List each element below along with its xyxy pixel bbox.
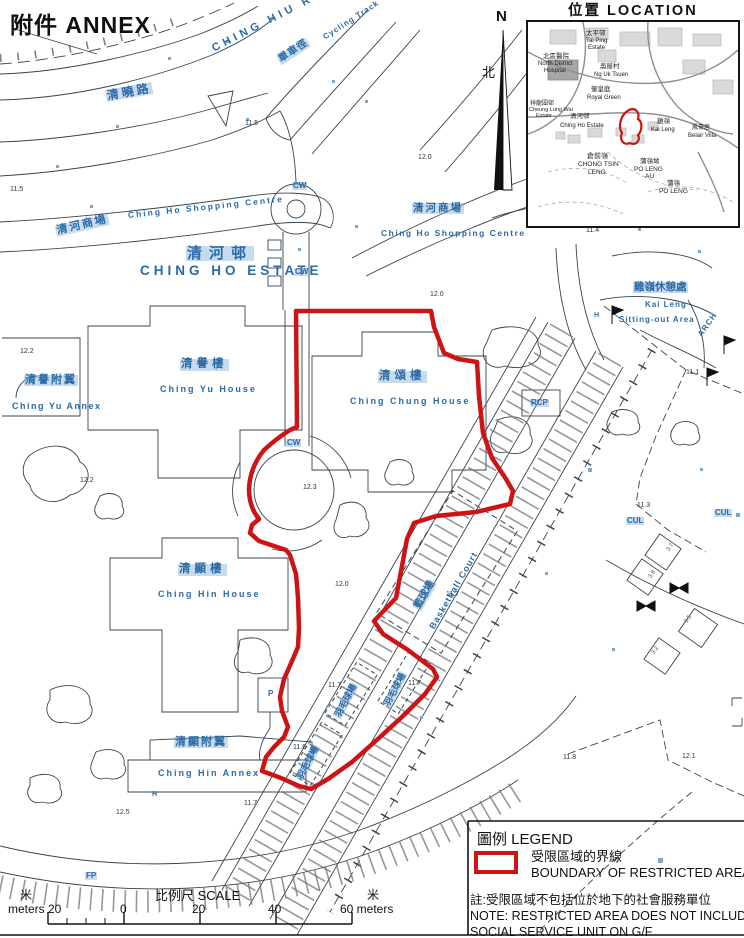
label-cw-1: CW — [292, 182, 307, 190]
annex-map-page: CHING HIU ROAD清曉路單車徑Cycling Track清河商場Chi… — [0, 0, 744, 938]
inset-title: 位置 LOCATION — [568, 3, 698, 20]
label-ching-hin-house-zh: 清顯樓 — [178, 564, 227, 576]
spot-height: 11.7 — [328, 682, 341, 689]
legend-note-en2: SOCIAL SERVICE UNIT ON G/F — [470, 925, 652, 938]
spot-height: 12.1 — [682, 753, 696, 760]
label-p: P — [268, 690, 273, 698]
label-shopping-centre-east-en: Ching Ho Shopping Centre — [381, 229, 526, 238]
survey-flag-icons — [612, 306, 735, 611]
north-label: N — [496, 8, 507, 25]
label-ching-chung-house-en: Ching Chung House — [350, 397, 471, 406]
inset-north-district-hospital-en: North District — [538, 61, 573, 67]
label-ching-ho-estate-zh: 清河邨 — [186, 246, 254, 261]
label-h-1: H — [594, 312, 599, 319]
spot-height: 12.0 — [430, 291, 444, 298]
inset-po-leng-en: PO LENG — [659, 189, 688, 196]
spot-height: 11.7 — [244, 800, 257, 807]
inset-po-leng-zh: 蒲嶺 — [667, 181, 680, 188]
label-fp: FP — [85, 872, 97, 880]
spot-height: 11.3 — [637, 502, 650, 509]
legend-title: 圖例 LEGEND — [477, 831, 573, 848]
scale-zero: 0 — [120, 903, 127, 917]
spot-height: 11.6 — [293, 744, 306, 751]
label-ching-yu-house-zh: 清譽樓 — [180, 359, 229, 371]
inset-belair-villa-zh: 鳳豪居 — [692, 125, 710, 131]
inset-north-district-hospital-en2: Hospital — [544, 68, 566, 74]
inset-kai-leng-en: Kai Leng — [651, 127, 675, 133]
spot-height: 11.5 — [10, 186, 23, 193]
spot-height: 11.7 — [446, 591, 459, 598]
label-cul-1: CUL — [626, 517, 644, 525]
label-ching-hin-house-en: Ching Hin House — [158, 590, 261, 599]
legend-boundary-en: BOUNDARY OF RESTRICTED AREA — [531, 866, 744, 881]
legend-boundary-zh: 受限區域的界線 — [531, 850, 622, 865]
label-cw-3: CW — [286, 439, 301, 447]
inset-royal-green-en: Royal Green — [587, 95, 621, 101]
inset-tai-ping-estate-en: Tai Ping — [586, 38, 607, 44]
spot-height: 11.4 — [586, 227, 599, 234]
spot-height: 11.5 — [245, 120, 258, 127]
label-cul-2: CUL — [714, 509, 732, 517]
north-zh-label: 北 — [482, 66, 495, 81]
inset-tai-ping-estate-en2: Estate — [588, 45, 605, 51]
location-inset-map: 太平邨Tai PingEstate北區醫院North DistrictHospi… — [526, 20, 740, 228]
label-ching-chung-house-zh: 清頌樓 — [378, 371, 427, 383]
inset-cheung-lung-wai-en2: Estate — [536, 114, 552, 120]
label-cw-2: CW — [294, 268, 309, 276]
inset-belair-villa-en: Belair Villa — [688, 133, 716, 139]
inset-chong-tsin-leng-en: CHONG TSIN — [578, 162, 619, 169]
inset-ng-uk-tsuen-en: Ng Uk Tsuen — [594, 72, 628, 78]
north-arrow-icon — [494, 30, 512, 190]
inset-ching-ho-estate-en: Ching Ho Estate — [560, 123, 604, 129]
inset-ng-uk-tsuen-zh: 吳屋村 — [600, 64, 620, 71]
label-ching-yu-house-en: Ching Yu House — [160, 385, 257, 394]
scale-20: 20 — [192, 903, 205, 917]
inset-po-leng-au-en2: AU — [645, 174, 654, 181]
label-kai-leng-sitting-out-en2: Sitting-out Area — [619, 316, 695, 324]
spot-height: 11.1 — [686, 369, 699, 376]
label-ching-hin-annex-en: Ching Hin Annex — [158, 769, 260, 778]
restricted-area-boundary — [249, 311, 513, 789]
label-ching-yu-annex-zh: 清譽附翼 — [24, 375, 78, 386]
inset-po-leng-au-zh: 蒲嶺坳 — [640, 159, 660, 166]
scale-left-label: meters 20 — [8, 903, 61, 917]
spot-height: 11.8 — [563, 754, 576, 761]
spot-height: 12.0 — [335, 581, 349, 588]
legend-boundary-swatch — [474, 851, 518, 874]
inset-ching-ho-estate-zh: 清河邨 — [570, 114, 590, 121]
scale-right-label: 60 meters — [340, 903, 393, 917]
label-ching-yu-annex-en: Ching Yu Annex — [12, 402, 102, 411]
inset-north-district-hospital-zh: 北區醫院 — [543, 54, 569, 61]
label-h-2: H — [152, 791, 157, 798]
inset-restricted-area-outline — [620, 109, 641, 144]
label-kai-leng-sitting-out-en1: Kai Leng — [645, 301, 687, 309]
annex-title: 附件 ANNEX — [10, 12, 151, 38]
label-rcp: RCP — [530, 399, 549, 407]
scale-right-unit: 米 — [367, 889, 379, 903]
inset-chong-tsin-leng-en2: LENG — [588, 170, 606, 177]
scale-40: 40 — [268, 903, 281, 917]
spot-height: 12.0 — [418, 154, 432, 161]
inset-tai-ping-estate-zh: 太平邨 — [586, 31, 606, 38]
label-kai-leng-sitting-out-zh: 雞嶺休憩處 — [633, 282, 688, 293]
label-shopping-centre-east-zh: 清河商場 — [412, 203, 464, 214]
spot-height: 11.7 — [408, 680, 421, 687]
scale-left-unit: 米 — [20, 889, 32, 903]
inset-kai-leng-zh: 雞嶺 — [657, 119, 670, 126]
spot-height: 12.3 — [303, 484, 317, 491]
legend-note-en1: NOTE: RESTRICTED AREA DOES NOT INCLUDE — [470, 909, 744, 923]
spot-height: 12.5 — [116, 809, 130, 816]
spot-height: 12.2 — [80, 477, 94, 484]
inset-chong-tsin-leng-zh: 倉前嶺 — [587, 153, 608, 160]
inset-royal-green-zh: 御皇庭 — [591, 87, 611, 94]
label-ching-hin-annex-zh: 清顯附翼 — [174, 737, 228, 748]
spot-height: 12.2 — [20, 348, 34, 355]
legend-note-zh: 註:受限區域不包括位於地下的社會服務單位 — [470, 893, 711, 907]
